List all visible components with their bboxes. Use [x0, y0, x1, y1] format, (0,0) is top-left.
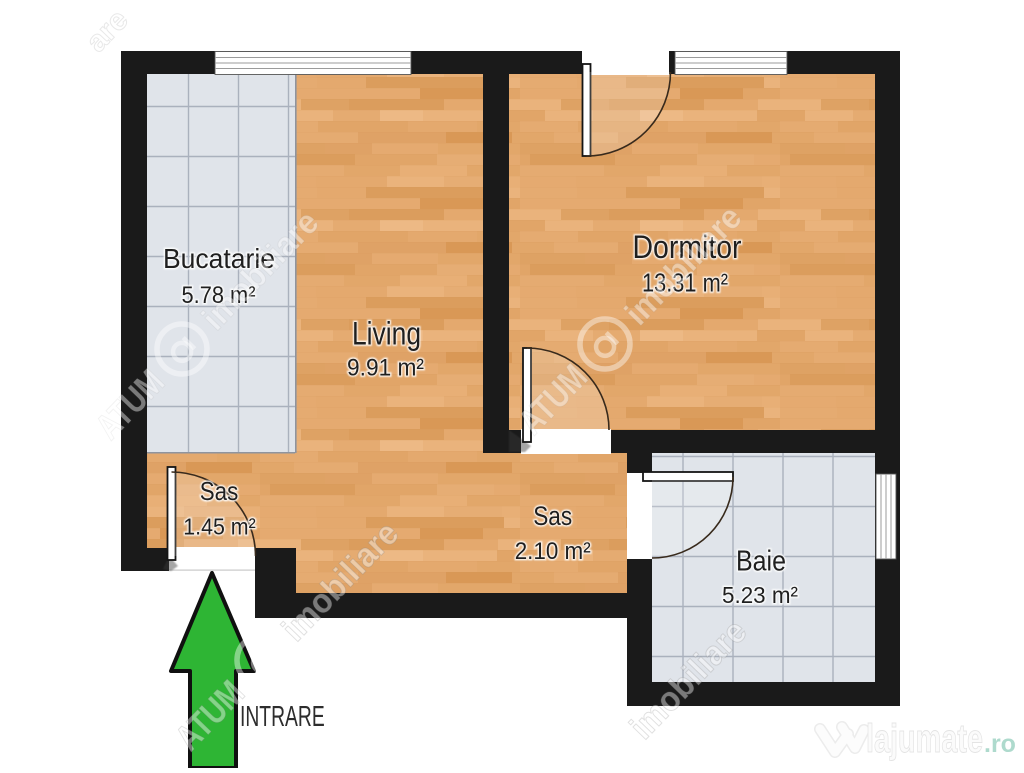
svg-text:Living: Living: [352, 316, 421, 352]
svg-text:Baie: Baie: [736, 545, 786, 577]
svg-text:Sas: Sas: [533, 501, 572, 531]
svg-text:2.10 m²: 2.10 m²: [515, 538, 591, 565]
svg-text:9.91 m²: 9.91 m²: [347, 355, 424, 382]
svg-text:INTRARE: INTRARE: [240, 701, 325, 733]
svg-text:.ro: .ro: [984, 730, 1016, 758]
svg-text:5.23 m²: 5.23 m²: [722, 582, 798, 608]
svg-text:lajumate: lajumate: [866, 717, 983, 761]
svg-text:1.45 m²: 1.45 m²: [183, 514, 256, 540]
svg-text:Sas: Sas: [200, 476, 239, 506]
